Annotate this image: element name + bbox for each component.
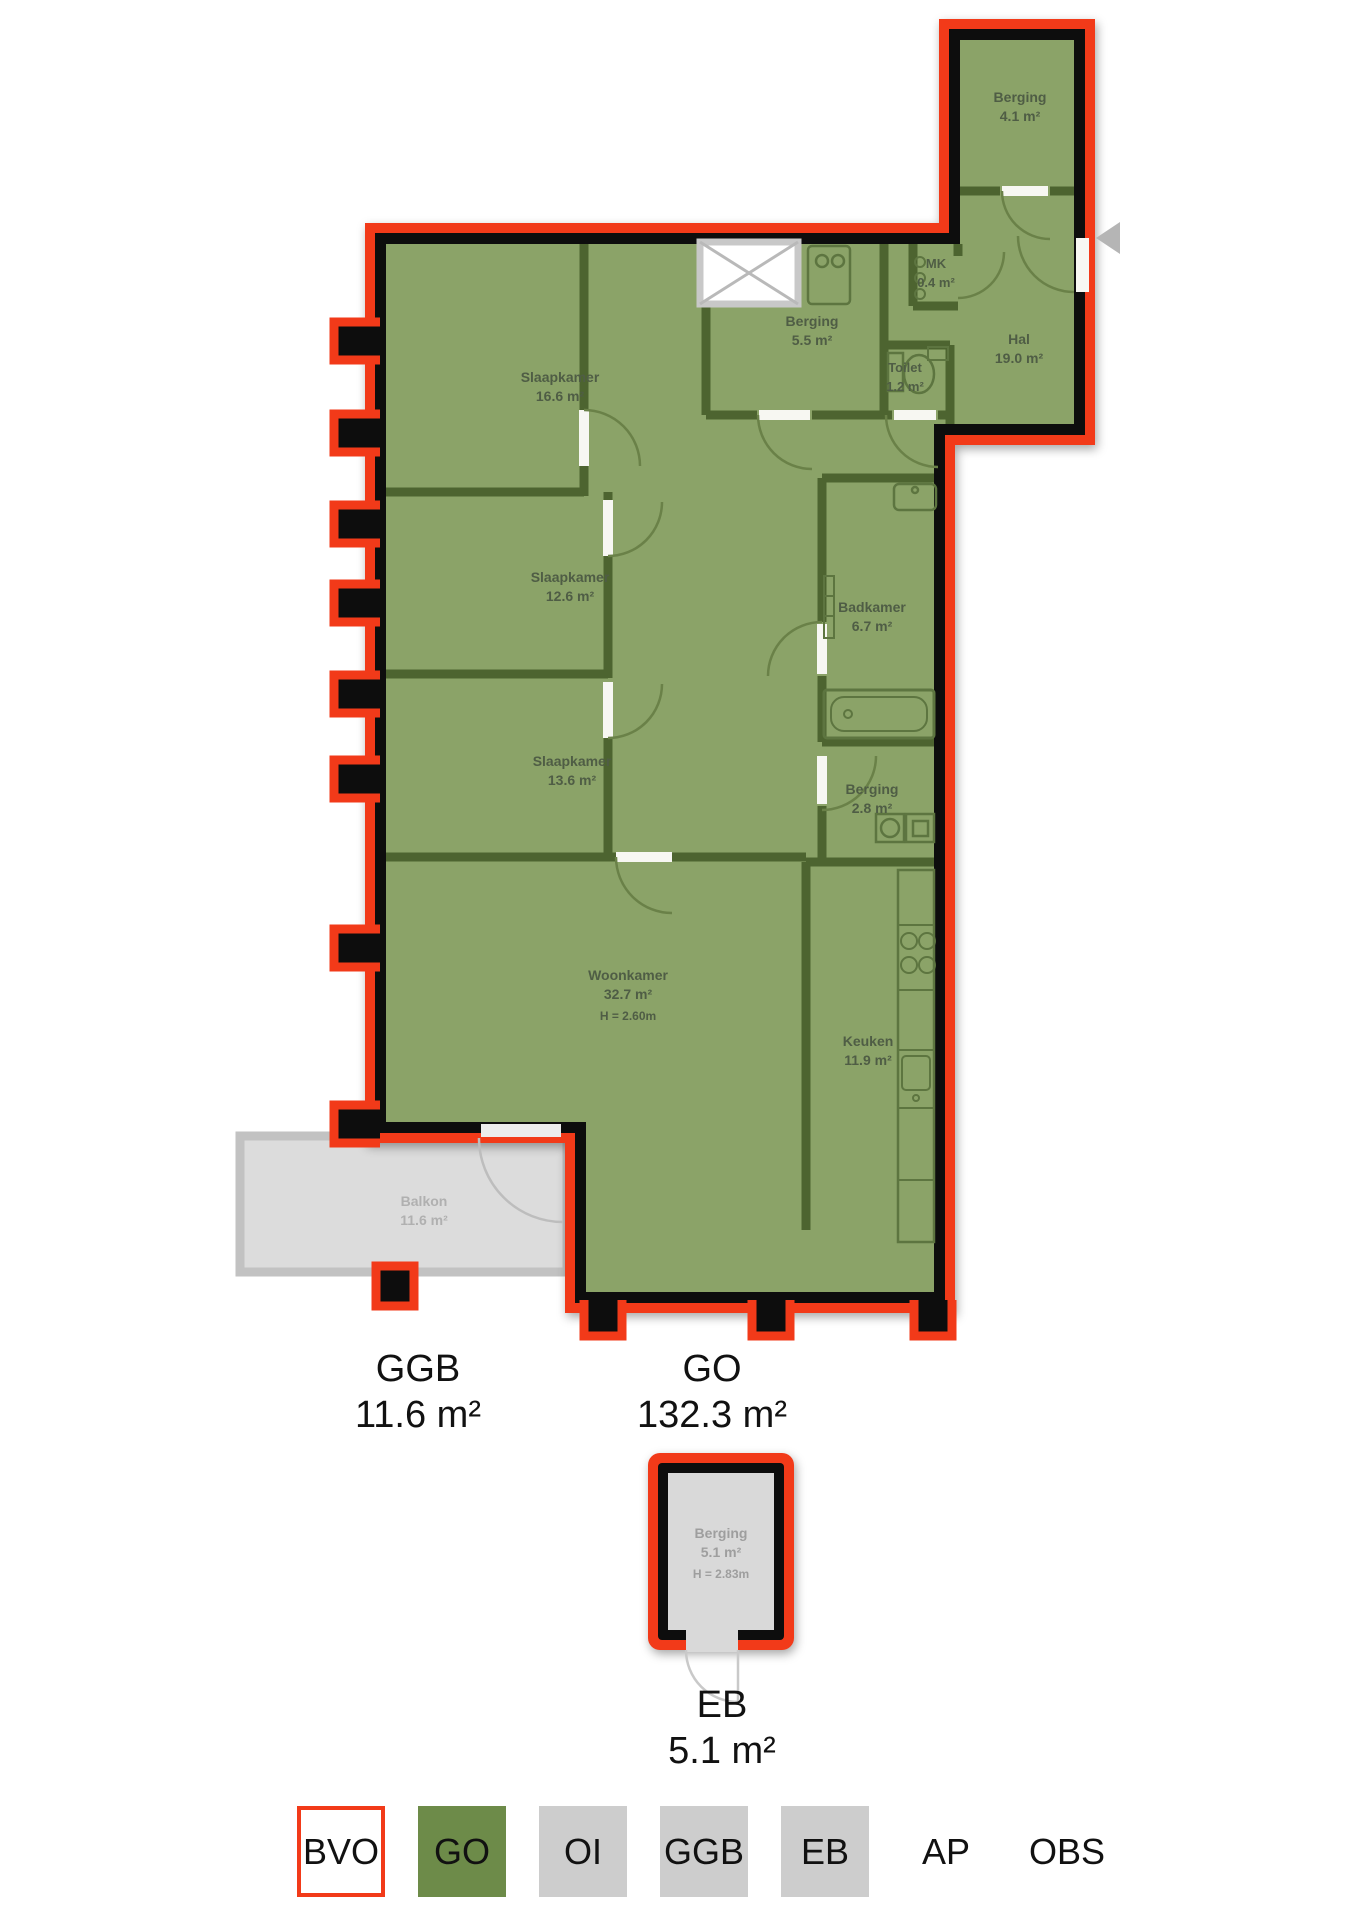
room-name: MK — [851, 254, 1021, 273]
room-name: Berging — [727, 312, 897, 331]
room-area: 12.6 m² — [485, 587, 655, 606]
room-area: 11.6 m² — [339, 1211, 509, 1230]
area-value: 132.3 m² — [602, 1392, 822, 1438]
eb-door-opening — [686, 1630, 738, 1652]
area-label-ggb: GGB 11.6 m² — [308, 1346, 528, 1438]
room-label-mk: MK 0.4 m² — [851, 254, 1021, 292]
room-name: Berging — [935, 88, 1105, 107]
area-code: EB — [612, 1682, 832, 1728]
room-area: 4.1 m² — [935, 107, 1105, 126]
room-area: 13.6 m² — [487, 771, 657, 790]
room-label-slaapkamer2: Slaapkamer 12.6 m² — [485, 568, 655, 606]
room-area: 11.9 m² — [783, 1051, 953, 1070]
legend-item-obs: OBS — [1023, 1806, 1111, 1897]
room-label-berging-klein: Berging 2.8 m² — [787, 780, 957, 818]
room-label-berging-boven: Berging 4.1 m² — [935, 88, 1105, 126]
room-name: Slaapkamer — [487, 752, 657, 771]
legend-item-oi: OI — [539, 1806, 627, 1897]
room-name: Toilet — [820, 358, 990, 377]
room-label-externe-berging: Berging 5.1 m² H = 2.83m — [636, 1524, 806, 1582]
legend-item-go: GO — [418, 1806, 506, 1897]
room-name: Berging — [787, 780, 957, 799]
area-code: GO — [602, 1346, 822, 1392]
legend: BVO GO OI GGB EB AP OBS — [297, 1806, 1111, 1897]
room-label-slaapkamer1: Slaapkamer 16.6 m² — [475, 368, 645, 406]
room-name: Woonkamer — [543, 966, 713, 985]
room-name: Slaapkamer — [485, 568, 655, 587]
area-code: GGB — [308, 1346, 528, 1392]
entrance-arrow-icon — [1096, 222, 1120, 254]
room-label-berging-midden: Berging 5.5 m² — [727, 312, 897, 350]
shaft-icon — [700, 242, 798, 304]
room-label-slaapkamer3: Slaapkamer 13.6 m² — [487, 752, 657, 790]
room-label-balkon: Balkon 11.6 m² — [339, 1192, 509, 1230]
room-name: Badkamer — [787, 598, 957, 617]
room-label-toilet: Toilet 1.2 m² — [820, 358, 990, 396]
room-height: H = 2.60m — [543, 1008, 713, 1024]
room-height: H = 2.83m — [636, 1566, 806, 1582]
legend-item-eb: EB — [781, 1806, 869, 1897]
room-name: Slaapkamer — [475, 368, 645, 387]
room-name: Balkon — [339, 1192, 509, 1211]
legend-item-ap: AP — [902, 1806, 990, 1897]
room-area: 32.7 m² — [543, 985, 713, 1004]
room-area: 1.2 m² — [820, 377, 990, 396]
room-area: 0.4 m² — [851, 273, 1021, 292]
room-area: 5.1 m² — [636, 1543, 806, 1562]
room-area: 16.6 m² — [475, 387, 645, 406]
room-label-keuken: Keuken 11.9 m² — [783, 1032, 953, 1070]
floor-plan-svg — [0, 0, 1358, 1920]
room-label-badkamer: Badkamer 6.7 m² — [787, 598, 957, 636]
room-area: 5.5 m² — [727, 331, 897, 350]
room-name: Keuken — [783, 1032, 953, 1051]
room-area: 6.7 m² — [787, 617, 957, 636]
room-label-woonkamer: Woonkamer 32.7 m² H = 2.60m — [543, 966, 713, 1024]
area-label-eb: EB 5.1 m² — [612, 1682, 832, 1774]
area-label-go: GO 132.3 m² — [602, 1346, 822, 1438]
room-name: Hal — [934, 330, 1104, 349]
legend-item-bvo: BVO — [297, 1806, 385, 1897]
floor-plan-page: Berging 4.1 m² MK 0.4 m² Hal 19.0 m² Ber… — [0, 0, 1358, 1920]
area-value: 11.6 m² — [308, 1392, 528, 1438]
room-name: Berging — [636, 1524, 806, 1543]
area-value: 5.1 m² — [612, 1728, 832, 1774]
room-area: 2.8 m² — [787, 799, 957, 818]
legend-item-ggb: GGB — [660, 1806, 748, 1897]
